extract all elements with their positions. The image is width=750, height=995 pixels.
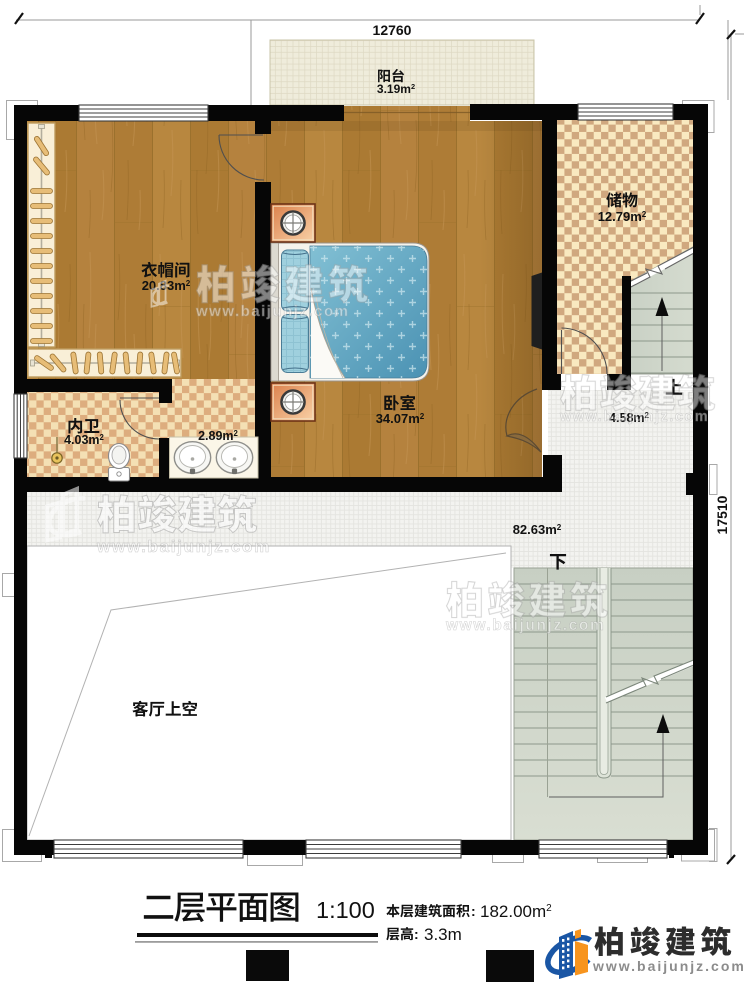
svg-text:3.3m: 3.3m <box>424 925 462 944</box>
svg-text:182.00m2: 182.00m2 <box>480 902 552 921</box>
svg-text::: : <box>471 903 476 919</box>
svg-text:1:100: 1:100 <box>316 897 375 923</box>
svg-text:12760: 12760 <box>373 22 412 38</box>
svg-text:www.baijunjz.com: www.baijunjz.com <box>592 958 746 974</box>
svg-text:www.baijunjz.com: www.baijunjz.com <box>445 617 605 634</box>
svg-text::: : <box>414 926 419 942</box>
svg-text:www.baijunjz.com: www.baijunjz.com <box>559 409 709 425</box>
svg-text:4.03m2: 4.03m2 <box>64 433 104 447</box>
svg-text:3.19m2: 3.19m2 <box>377 82 415 96</box>
svg-text:2.89m2: 2.89m2 <box>198 429 238 443</box>
svg-text:82.63m2: 82.63m2 <box>513 522 562 537</box>
svg-text:34.07m2: 34.07m2 <box>376 411 425 426</box>
svg-text:www.baijunjz.com: www.baijunjz.com <box>195 303 349 320</box>
svg-text:17510: 17510 <box>714 495 730 534</box>
svg-text:www.baijunjz.com: www.baijunjz.com <box>96 537 271 556</box>
svg-text:12.79m2: 12.79m2 <box>598 209 647 224</box>
